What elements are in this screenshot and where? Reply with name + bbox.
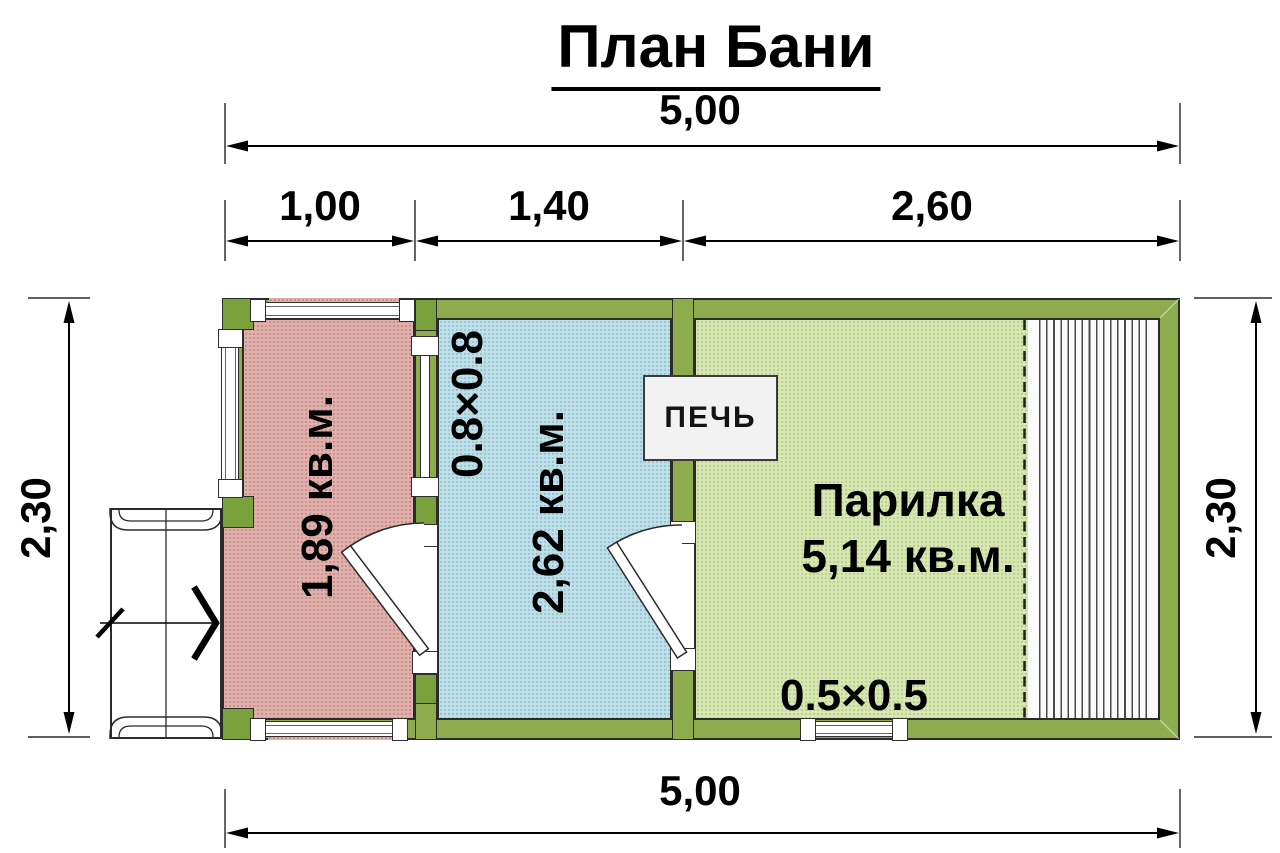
room-steam-area: 5,14 кв.м. (801, 528, 1014, 584)
window-cap (411, 336, 439, 356)
window-cap (250, 718, 266, 741)
window-cap (250, 299, 266, 322)
window-left-icon (221, 332, 239, 498)
dimension-label-top-total: 5,00 (659, 87, 741, 133)
window-top-icon (253, 302, 415, 319)
window-cap (399, 299, 415, 322)
stove-box: ПЕЧЬ (643, 375, 778, 461)
window-cap (892, 718, 908, 741)
dimension-label-segment-1: 1,00 (279, 183, 361, 229)
wall-post (415, 299, 437, 331)
door-jamb (670, 648, 696, 671)
door-opening-entry (415, 547, 437, 651)
wall-post (222, 496, 254, 528)
dimension-label-segment-2: 1,40 (508, 183, 590, 229)
room-steam-name: Парилка (801, 472, 1014, 528)
dimension-label-right-height: 2,30 (1198, 477, 1244, 559)
window-bottom-entry-icon (252, 721, 408, 737)
door-jamb (412, 524, 438, 547)
window-cap (218, 329, 243, 348)
door-opening-washing (672, 544, 694, 648)
steam-window-size-label: 0.5×0.5 (780, 672, 928, 720)
wall-post (415, 674, 437, 704)
window-cap (800, 718, 816, 741)
room-steam-label: Парилка 5,14 кв.м. (801, 472, 1014, 584)
door-jamb (412, 651, 438, 674)
door-jamb (670, 521, 696, 544)
wall-post (415, 495, 437, 525)
floor-plan-canvas: План Бани ПЕЧЬ (0, 0, 1280, 853)
window-cap (218, 479, 243, 498)
window-cap (411, 477, 439, 497)
dimension-label-segment-3: 2,60 (891, 183, 973, 229)
porch-steps (110, 508, 222, 739)
partition-washing-steam (672, 298, 694, 740)
room-entry-area-label: 1,89 кв.м. (294, 395, 342, 599)
plan-title: План Бани (551, 12, 880, 91)
steam-bench (1028, 320, 1158, 718)
room-washing-size-label: 0.8×0.8 (444, 330, 492, 478)
stove-label: ПЕЧЬ (664, 401, 756, 435)
window-cap (392, 718, 408, 741)
window-partition-icon (420, 355, 430, 478)
dimension-label-left-height: 2,30 (13, 477, 59, 559)
room-washing-area-label: 2,62 кв.м. (525, 410, 573, 614)
dimension-label-bottom-total: 5,00 (659, 768, 741, 814)
bench-slats (1039, 320, 1152, 718)
entrance-opening (224, 528, 244, 708)
